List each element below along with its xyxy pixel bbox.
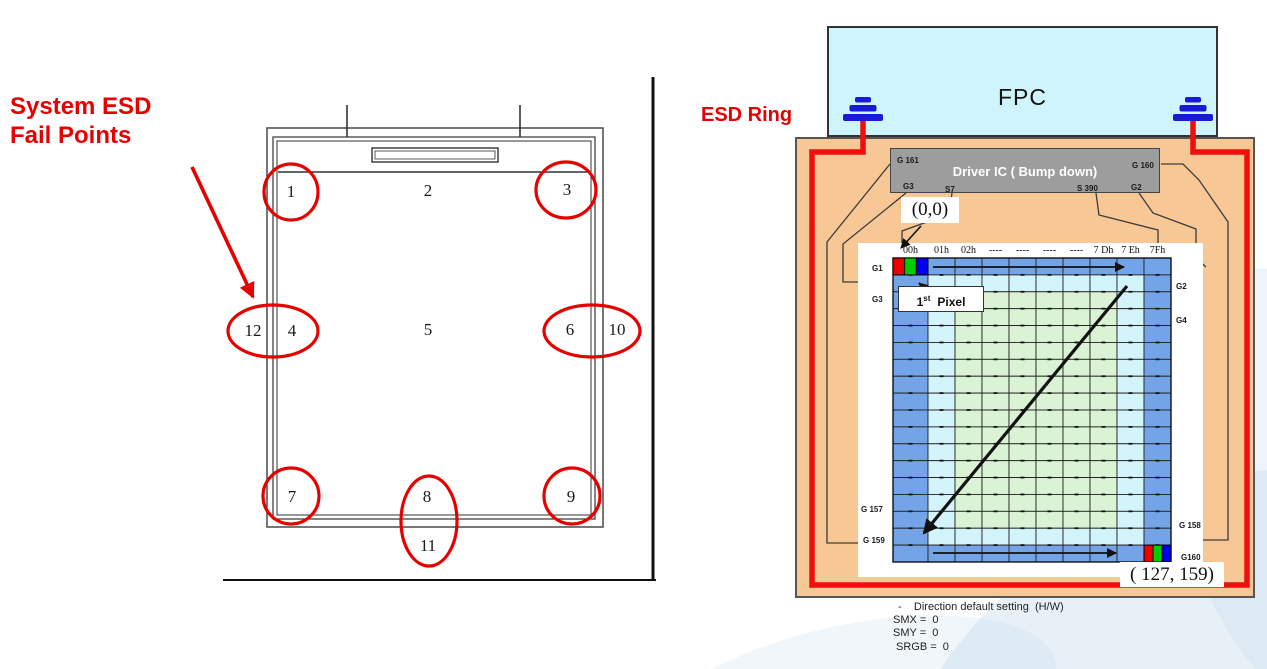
fpc-label: FPC <box>998 84 1047 111</box>
fail-point-number-6: 6 <box>566 320 575 340</box>
column-header-5: ---- <box>1043 245 1056 256</box>
end-coordinate-label: ( 127, 159) <box>1120 562 1224 587</box>
gate-label-g1: G1 <box>872 264 883 273</box>
column-header-8: 7 Eh <box>1121 245 1140 256</box>
column-header-6: ---- <box>1070 245 1083 256</box>
column-header-9: 7Fh <box>1150 245 1166 256</box>
fail-point-number-11: 11 <box>420 536 436 556</box>
speaker-slot-inner <box>375 151 495 159</box>
ic-pin-label-g2: G2 <box>1131 183 1142 192</box>
note-line-2: SMY = 0 <box>893 627 938 639</box>
gate-label-g157: G 157 <box>861 505 883 514</box>
fail-point-number-2: 2 <box>424 181 433 201</box>
device-outer-frame <box>267 128 603 527</box>
ic-pin-label-g160: G 160 <box>1132 161 1154 170</box>
ic-pin-label-g3: G3 <box>903 182 914 191</box>
driver-ic-block: Driver IC ( Bump down) <box>890 148 1160 193</box>
first-pixel-ordinal: st <box>923 294 930 303</box>
column-header-0: 00h <box>903 245 918 256</box>
first-pixel-word: Pixel <box>937 295 965 309</box>
gate-label-g4: G4 <box>1176 316 1187 325</box>
origin-coordinate-label: (0,0) <box>901 197 959 223</box>
fail-point-number-1: 1 <box>287 182 296 202</box>
ic-pin-label-s390: S 390 <box>1077 184 1098 193</box>
fail-point-number-12: 12 <box>245 321 262 341</box>
column-header-4: ---- <box>1016 245 1029 256</box>
fail-point-circle-3 <box>544 305 640 357</box>
fail-point-number-4: 4 <box>288 321 297 341</box>
gate-label-g3: G3 <box>872 295 883 304</box>
fail-point-number-3: 3 <box>563 180 572 200</box>
speaker-slot <box>372 148 498 162</box>
device-inner-frame-2 <box>277 141 591 515</box>
column-header-7: 7 Dh <box>1094 245 1114 256</box>
gate-label-g2: G2 <box>1176 282 1187 291</box>
fail-point-number-10: 10 <box>609 320 626 340</box>
system-esd-fail-points-title: System ESD Fail Points <box>10 92 210 150</box>
first-pixel-callout: 1stPixel <box>898 286 984 312</box>
fail-point-number-8: 8 <box>423 487 432 507</box>
fail-point-number-9: 9 <box>567 487 576 507</box>
column-header-3: ---- <box>989 245 1002 256</box>
fail-point-number-5: 5 <box>424 320 433 340</box>
note-line-1: SMX = 0 <box>893 614 939 626</box>
ic-pin-label-s7: S7 <box>945 185 955 194</box>
esd-ring-label: ESD Ring <box>701 104 792 127</box>
fail-point-circle-2 <box>228 305 318 357</box>
column-header-1: 01h <box>934 245 949 256</box>
gate-label-g159: G 159 <box>863 536 885 545</box>
fail-points-arrow <box>192 167 253 297</box>
note-line-3: SRGB = 0 <box>896 641 949 653</box>
fpc-block: FPC <box>827 26 1218 137</box>
gate-label-g160: G160 <box>1181 553 1201 562</box>
column-header-2: 02h <box>961 245 976 256</box>
slide-canvas: System ESD Fail Points 123124561078911 E… <box>0 0 1267 669</box>
ic-pin-label-g161: G 161 <box>897 156 919 165</box>
fail-point-number-7: 7 <box>288 487 297 507</box>
gate-label-g158: G 158 <box>1179 521 1201 530</box>
note-line-0: - Direction default setting (H/W) <box>898 601 1064 613</box>
driver-ic-label: Driver IC ( Bump down) <box>891 164 1159 179</box>
device-inner-frame <box>273 137 595 519</box>
